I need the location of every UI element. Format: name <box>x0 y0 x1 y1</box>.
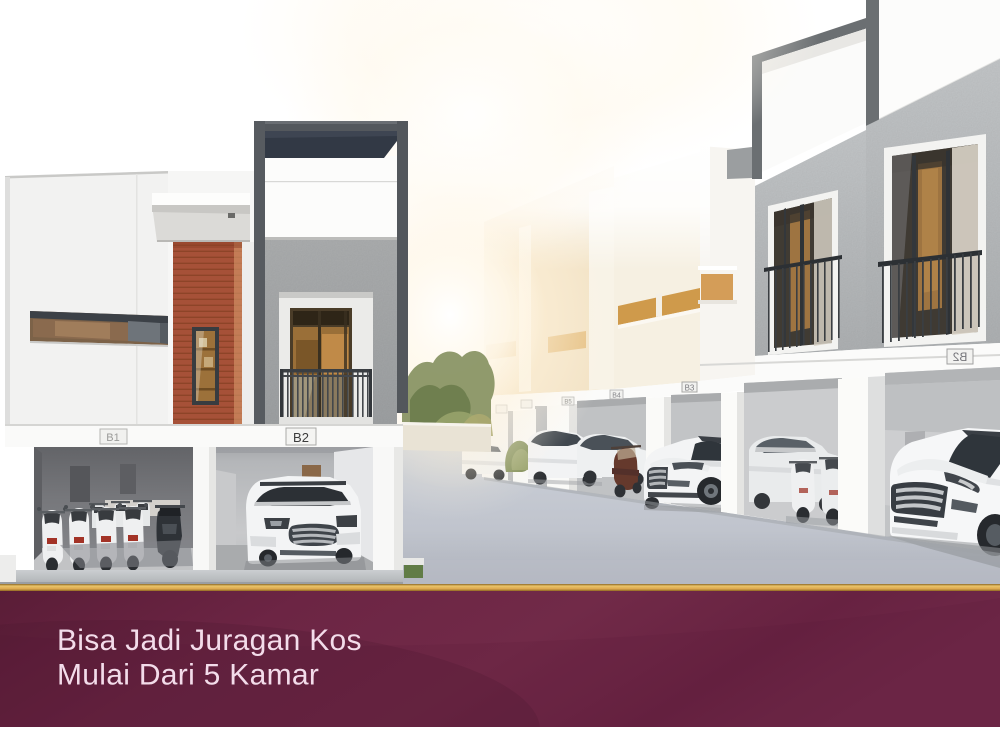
svg-text:B2: B2 <box>952 350 967 364</box>
svg-text:Mulai Dari 5 Kamar: Mulai Dari 5 Kamar <box>57 659 319 692</box>
svg-text:B4: B4 <box>612 393 621 400</box>
svg-text:Bisa Jadi Juragan Kos: Bisa Jadi Juragan Kos <box>57 624 362 657</box>
svg-text:B3: B3 <box>685 384 695 393</box>
svg-text:B2: B2 <box>293 430 309 445</box>
svg-text:B1: B1 <box>106 432 119 444</box>
